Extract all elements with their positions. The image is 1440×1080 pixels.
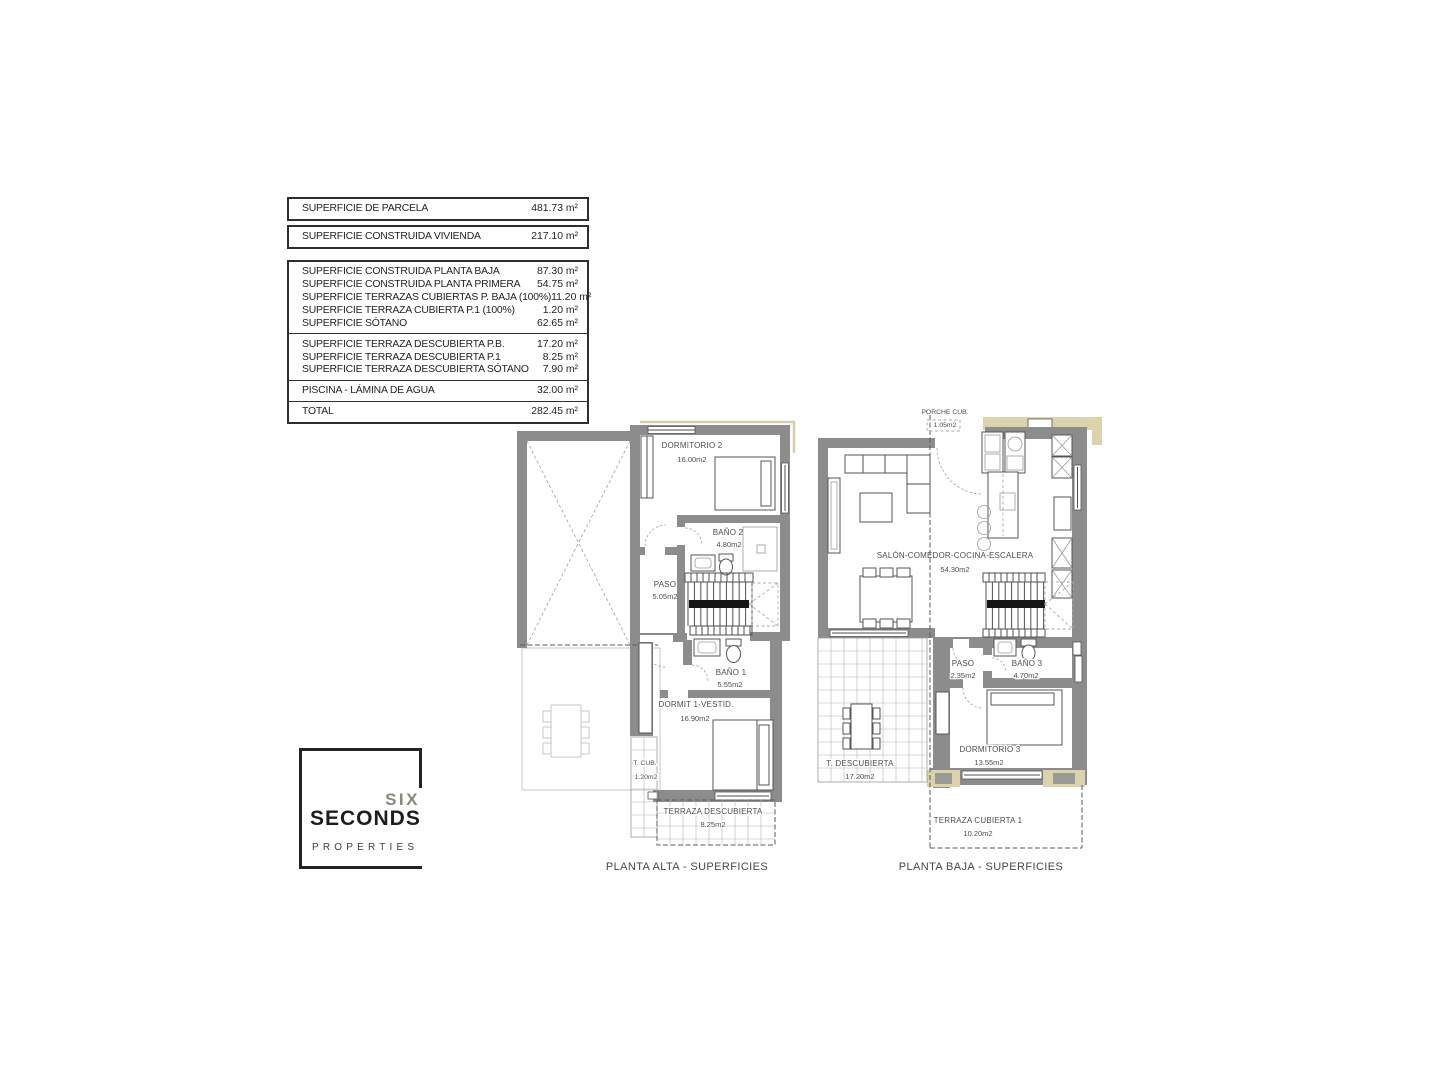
logo-seconds: SECONDS bbox=[310, 807, 421, 831]
table-box-parcela: SUPERFICIE DE PARCELA 481.73 m² bbox=[287, 197, 589, 221]
label-tdescubierta: T. DESCUBIERTA bbox=[826, 759, 894, 768]
row-value: 17.20 m² bbox=[537, 339, 587, 350]
floor-plan-planta-baja: PORCHE CUB. 1.05m2 SALÓN-COMEDOR-COCINA-… bbox=[815, 400, 1125, 855]
label-paso: PASO bbox=[952, 659, 974, 668]
label-dormitorio3: DORMITORIO 3 bbox=[960, 745, 1021, 754]
label-salon: SALÓN-COMEDOR-COCINA-ESCALERA bbox=[877, 551, 1034, 560]
coffee-table bbox=[860, 493, 892, 522]
area-terraza-descubierta: 8.25m2 bbox=[700, 820, 725, 829]
row-label: SUPERFICIE TERRAZA CUBIERTA P.1 (100%) bbox=[289, 305, 543, 316]
area-dormitorio3: 13.55m2 bbox=[974, 758, 1003, 767]
tall-cabinets bbox=[1052, 435, 1072, 598]
row-label: PISCINA - LÁMINA DE AGUA bbox=[289, 385, 537, 396]
media-unit bbox=[828, 478, 840, 553]
logo-properties: PROPERTIES bbox=[312, 842, 418, 853]
covered-terrace-tiles bbox=[631, 737, 657, 837]
wardrobe-dormitorio3 bbox=[936, 692, 949, 734]
row-label: SUPERFICIE TERRAZA DESCUBIERTA P.B. bbox=[289, 339, 537, 350]
area-bano2: 4.80m2 bbox=[716, 540, 741, 549]
table-section-construida: SUPERFICIE CONSTRUIDA PLANTA BAJA87.30 m… bbox=[289, 262, 587, 333]
row-label: SUPERFICIE TERRAZA DESCUBIERTA SÓTANO bbox=[289, 364, 543, 375]
table-row: SUPERFICIE TERRAZA DESCUBIERTA SÓTANO7.9… bbox=[289, 364, 587, 377]
row-label: SUPERFICIE DE PARCELA bbox=[289, 203, 531, 214]
area-tdescubierta: 17.20m2 bbox=[845, 772, 874, 781]
table-section-piscina: PISCINA - LÁMINA DE AGUA32.00 m² bbox=[289, 380, 587, 401]
row-label: TOTAL bbox=[289, 406, 531, 417]
row-value: 217.10 m² bbox=[531, 231, 587, 242]
row-label: SUPERFICIE TERRAZA DESCUBIERTA P.1 bbox=[289, 352, 543, 363]
floor-plan-planta-alta: DORMITORIO 2 16.00m2 BAÑO 2 4.80m2 PASO … bbox=[505, 415, 800, 855]
table-row: SUPERFICIE TERRAZA CUBIERTA P.1 (100%)1.… bbox=[289, 304, 587, 317]
row-label: SUPERFICIE SÓTANO bbox=[289, 318, 537, 329]
table-row: SUPERFICIE CONSTRUIDA PLANTA BAJA87.30 m… bbox=[289, 265, 587, 278]
table-row: SUPERFICIE TERRAZA DESCUBIERTA P.B.17.20… bbox=[289, 338, 587, 351]
label-bano2: BAÑO 2 bbox=[713, 528, 744, 537]
staircase bbox=[685, 573, 778, 635]
area-bano3: 4.70m2 bbox=[1013, 671, 1038, 680]
row-value: 11.20 m² bbox=[551, 292, 600, 303]
area-salon: 54.30m2 bbox=[940, 565, 969, 574]
row-label: SUPERFICIE TERRAZAS CUBIERTAS P. BAJA (1… bbox=[289, 292, 551, 303]
table-row: SUPERFICIE CONSTRUIDA VIVIENDA 217.10 m² bbox=[289, 230, 587, 243]
six-seconds-logo: SIX SECONDS PROPERTIES bbox=[299, 748, 422, 869]
table-row: SUPERFICIE TERRAZAS CUBIERTAS P. BAJA (1… bbox=[289, 291, 587, 304]
double-height-void bbox=[527, 441, 630, 645]
logo-frame bbox=[299, 748, 302, 869]
row-value: 7.90 m² bbox=[543, 364, 587, 375]
row-label: SUPERFICIE CONSTRUIDA PLANTA BAJA bbox=[289, 266, 537, 277]
row-value: 1.20 m² bbox=[543, 305, 587, 316]
label-bano1: BAÑO 1 bbox=[716, 668, 747, 677]
label-terraza-cubierta1: TERRAZA CUBIERTA 1 bbox=[934, 816, 1023, 825]
area-paso: 2.35m2 bbox=[950, 671, 975, 680]
row-value: 62.65 m² bbox=[537, 318, 587, 329]
caption-planta-baja: PLANTA BAJA - SUPERFICIES bbox=[871, 861, 1091, 873]
bed-dormitorio2 bbox=[715, 457, 775, 510]
area-dormitorio2: 16.00m2 bbox=[677, 455, 706, 464]
logo-frame bbox=[299, 866, 422, 869]
area-porche: 1.05m2 bbox=[934, 422, 957, 429]
table-row: SUPERFICIE TERRAZA DESCUBIERTA P.18.25 m… bbox=[289, 351, 587, 364]
area-terraza-cubierta1: 10.20m2 bbox=[963, 829, 992, 838]
area-paso: 5.05m2 bbox=[652, 592, 677, 601]
bed-dormitorio3 bbox=[987, 690, 1062, 745]
row-label: SUPERFICIE CONSTRUIDA PLANTA PRIMERA bbox=[289, 279, 537, 290]
row-value: 32.00 m² bbox=[537, 385, 587, 396]
table-row: PISCINA - LÁMINA DE AGUA32.00 m² bbox=[289, 384, 587, 397]
area-bano1: 5.55m2 bbox=[717, 680, 742, 689]
row-value: 8.25 m² bbox=[543, 352, 587, 363]
area-tcub: 1.20m2 bbox=[635, 774, 658, 781]
area-dormit1: 16.90m2 bbox=[680, 714, 709, 723]
row-value: 54.75 m² bbox=[537, 279, 587, 290]
label-tcub: T. CUB. bbox=[633, 760, 657, 767]
table-row: SUPERFICIE SÓTANO62.65 m² bbox=[289, 317, 587, 330]
wardrobe-dormit1 bbox=[639, 643, 652, 733]
label-terraza-descubierta: TERRAZA DESCUBIERTA bbox=[663, 807, 763, 816]
table-section-descubierta: SUPERFICIE TERRAZA DESCUBIERTA P.B.17.20… bbox=[289, 333, 587, 380]
label-porche: PORCHE CUB. bbox=[921, 409, 968, 416]
label-dormit1: DORMIT 1-VESTID. bbox=[658, 700, 733, 709]
logo-frame bbox=[299, 748, 422, 751]
page: SUPERFICIE DE PARCELA 481.73 m² SUPERFIC… bbox=[0, 0, 1440, 1080]
logo-frame bbox=[419, 748, 422, 788]
row-label: SUPERFICIE CONSTRUIDA VIVIENDA bbox=[289, 231, 531, 242]
bed-dormit1 bbox=[713, 720, 773, 790]
table-row: SUPERFICIE DE PARCELA 481.73 m² bbox=[289, 203, 587, 216]
row-value: 87.30 m² bbox=[537, 266, 587, 277]
row-value: 481.73 m² bbox=[531, 203, 587, 214]
table-row: SUPERFICIE CONSTRUIDA PLANTA PRIMERA54.7… bbox=[289, 278, 587, 291]
label-bano3: BAÑO 3 bbox=[1012, 659, 1043, 668]
bathroom3-fixtures bbox=[994, 639, 1036, 661]
label-paso: PASO bbox=[654, 580, 676, 589]
table-box-detail: SUPERFICIE CONSTRUIDA PLANTA BAJA87.30 m… bbox=[287, 260, 589, 424]
outdoor-table bbox=[843, 704, 880, 749]
bathroom1-fixtures bbox=[694, 639, 741, 663]
surface-table: SUPERFICIE DE PARCELA 481.73 m² SUPERFIC… bbox=[287, 197, 589, 424]
table-box-vivienda: SUPERFICIE CONSTRUIDA VIVIENDA 217.10 m² bbox=[287, 225, 589, 249]
label-dormitorio2: DORMITORIO 2 bbox=[662, 441, 723, 450]
caption-planta-alta: PLANTA ALTA - SUPERFICIES bbox=[577, 861, 797, 873]
dining-table bbox=[860, 568, 912, 628]
